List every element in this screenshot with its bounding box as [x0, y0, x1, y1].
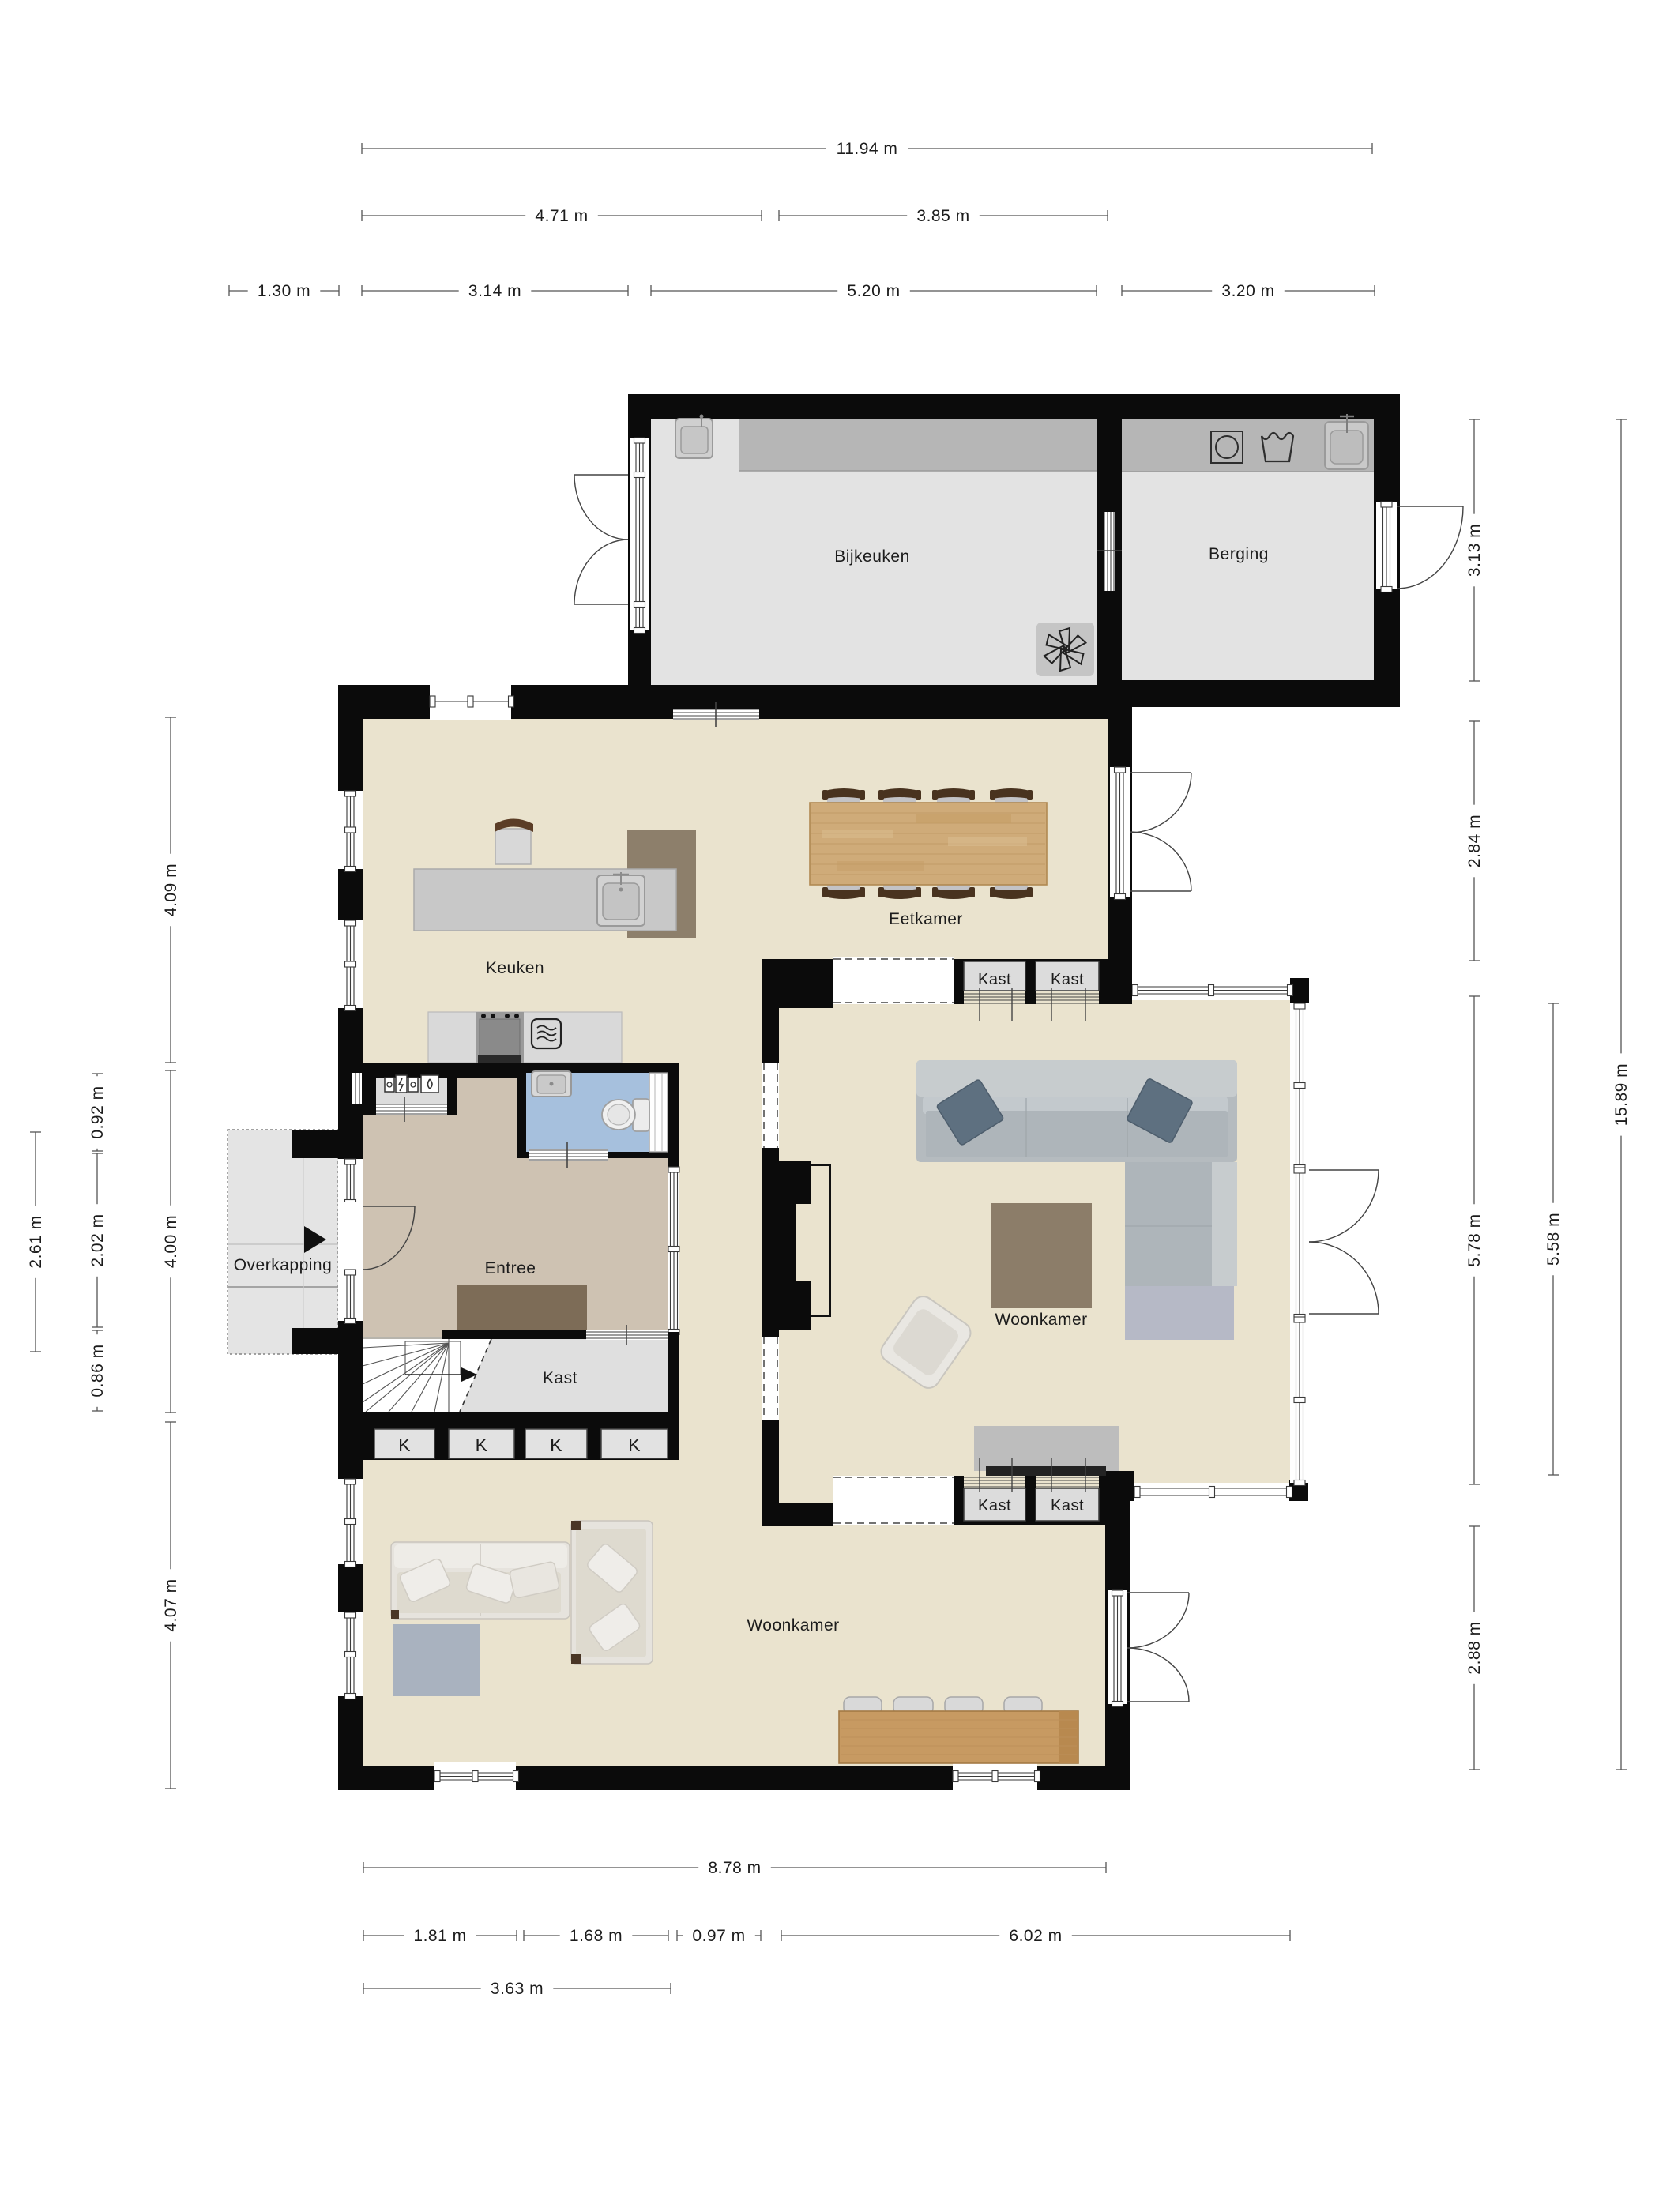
svg-text:Keuken: Keuken	[486, 959, 544, 977]
svg-text:Kast: Kast	[1051, 971, 1084, 988]
svg-text:0.92 m: 0.92 m	[88, 1085, 107, 1138]
svg-text:2.02 m: 2.02 m	[88, 1213, 107, 1266]
svg-text:4.07 m: 4.07 m	[162, 1578, 180, 1631]
svg-text:3.85 m: 3.85 m	[916, 207, 969, 225]
svg-text:Berging: Berging	[1209, 545, 1269, 563]
svg-text:5.20 m: 5.20 m	[847, 282, 900, 300]
svg-text:Kast: Kast	[978, 971, 1011, 988]
svg-text:3.14 m: 3.14 m	[468, 282, 521, 300]
svg-text:11.94 m: 11.94 m	[837, 140, 898, 158]
svg-text:Woonkamer: Woonkamer	[995, 1311, 1087, 1329]
svg-text:15.89 m: 15.89 m	[1612, 1063, 1631, 1126]
svg-text:4.71 m: 4.71 m	[535, 207, 588, 225]
svg-text:5.78 m: 5.78 m	[1465, 1213, 1484, 1266]
svg-text:1.81 m: 1.81 m	[413, 1927, 466, 1945]
svg-text:1.30 m: 1.30 m	[258, 282, 310, 300]
svg-text:0.97 m: 0.97 m	[692, 1927, 745, 1945]
svg-text:Eetkamer: Eetkamer	[889, 910, 963, 928]
svg-text:2.88 m: 2.88 m	[1465, 1621, 1484, 1674]
svg-text:8.78 m: 8.78 m	[708, 1859, 761, 1877]
svg-text:Kast: Kast	[543, 1369, 577, 1387]
svg-text:4.09 m: 4.09 m	[162, 863, 180, 916]
svg-text:K: K	[550, 1435, 562, 1455]
svg-text:Entree: Entree	[485, 1259, 536, 1277]
svg-text:0.86 m: 0.86 m	[88, 1344, 107, 1397]
svg-text:K: K	[398, 1435, 411, 1455]
svg-text:2.61 m: 2.61 m	[27, 1215, 45, 1268]
svg-text:3.13 m: 3.13 m	[1465, 524, 1484, 577]
svg-text:Woonkamer: Woonkamer	[747, 1616, 839, 1635]
svg-text:Kast: Kast	[1051, 1497, 1084, 1514]
svg-text:4.00 m: 4.00 m	[162, 1215, 180, 1268]
svg-text:3.20 m: 3.20 m	[1221, 282, 1274, 300]
svg-text:3.63 m: 3.63 m	[491, 1980, 544, 1998]
svg-text:2.84 m: 2.84 m	[1465, 814, 1484, 867]
svg-text:6.02 m: 6.02 m	[1009, 1927, 1062, 1945]
svg-text:K: K	[476, 1435, 488, 1455]
svg-text:5.58 m: 5.58 m	[1544, 1213, 1563, 1266]
svg-text:Bijkeuken: Bijkeuken	[834, 547, 910, 566]
svg-text:Kast: Kast	[978, 1497, 1011, 1514]
svg-text:1.68 m: 1.68 m	[570, 1927, 623, 1945]
svg-text:Overkapping: Overkapping	[234, 1256, 333, 1274]
svg-text:K: K	[628, 1435, 641, 1455]
